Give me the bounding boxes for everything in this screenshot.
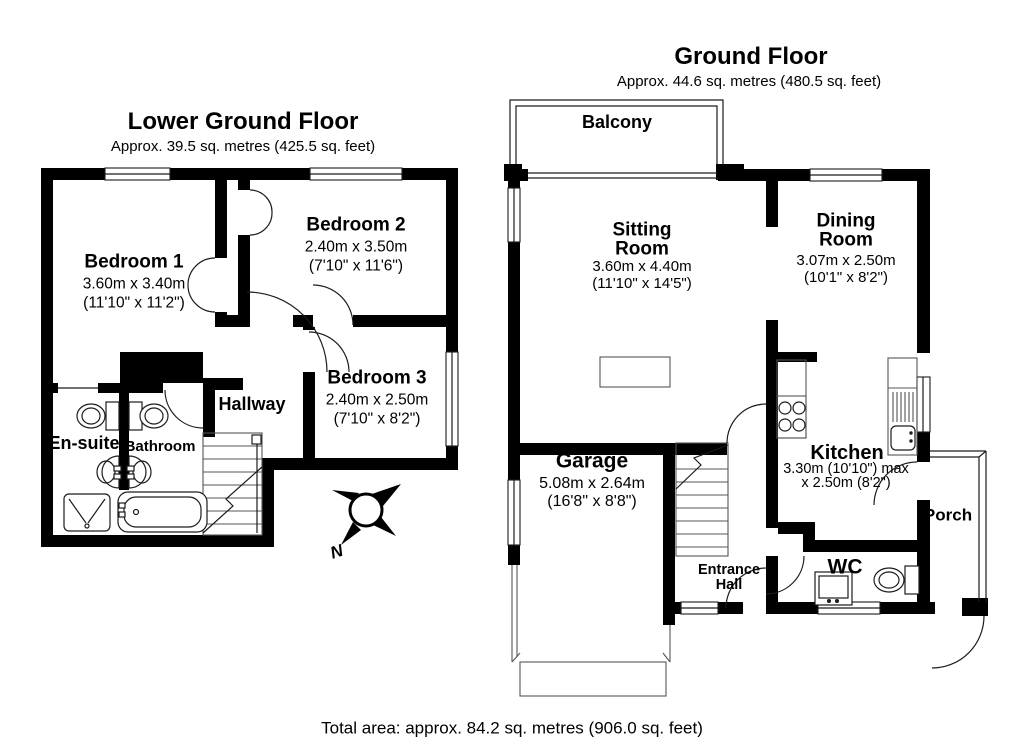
ground-floor-stairs (676, 443, 728, 556)
bathtub-icon (118, 492, 207, 532)
ground-floor-title: Ground Floor (674, 44, 827, 70)
bathroom-sink-icon (127, 456, 151, 488)
room-label-garage-metric: 5.08m x 2.64m (539, 475, 645, 493)
room-label-bedroom3-metric: 2.40m x 2.50m (326, 391, 429, 408)
room-label-kitchen-imperial: x 2.50m (8'2") (801, 476, 890, 492)
room-label-sitting-name: Sitting Room (592, 221, 692, 260)
room-label-hallway: Hallway (218, 395, 285, 415)
total-area-footer: Total area: approx. 84.2 sq. metres (906… (321, 720, 703, 739)
ground-floor-walls (508, 169, 988, 625)
room-label-garage-name: Garage (556, 449, 628, 472)
ground-floor-area: Approx. 44.6 sq. metres (480.5 sq. feet) (617, 74, 881, 91)
room-label-dining-imperial: (10'1" x 8'2") (804, 270, 888, 287)
sofa-outline (600, 357, 670, 387)
shower-icon (64, 494, 110, 531)
room-label-ensuite: En-suite (48, 434, 119, 454)
room-label-bedroom3-name: Bedroom 3 (327, 369, 426, 390)
room-label-bedroom2-metric: 2.40m x 3.50m (305, 238, 408, 255)
kitchen-sink-icon (888, 358, 917, 455)
compass-rose-icon: N (328, 484, 401, 563)
room-label-bathroom: Bathroom (125, 439, 196, 456)
room-label-bedroom2-imperial: (7'10" x 11'6") (309, 257, 403, 274)
room-label-bedroom1-name: Bedroom 1 (84, 253, 183, 274)
ensuite-sink-icon (97, 456, 121, 488)
room-label-bedroom1-metric: 3.60m x 3.40m (83, 275, 186, 292)
lower-ground-stairs (203, 433, 262, 535)
wc-toilet-icon (874, 566, 919, 594)
room-label-sitting-metric: 3.60m x 4.40m (592, 259, 691, 276)
kitchen-hob-icon (777, 360, 806, 438)
room-label-porch: Porch (924, 507, 972, 526)
ensuite-toilet-icon (77, 402, 119, 430)
compass-north-label: N (328, 541, 346, 563)
lower-ground-title: Lower Ground Floor (128, 109, 359, 135)
lower-ground-area: Approx. 39.5 sq. metres (425.5 sq. feet) (111, 139, 375, 156)
room-label-bedroom3-imperial: (7'10" x 8'2") (334, 410, 421, 427)
garage-door (512, 565, 670, 696)
room-label-balcony: Balcony (582, 113, 652, 133)
room-label-dining-metric: 3.07m x 2.50m (796, 253, 895, 270)
room-label-wc: WC (828, 555, 863, 578)
room-label-sitting-imperial: (11'10" x 14'5") (592, 276, 692, 293)
porch-structure (930, 451, 986, 602)
room-label-garage-imperial: (16'8" x 8'8") (547, 493, 637, 511)
room-label-bedroom2-name: Bedroom 2 (306, 216, 405, 237)
bathroom-toilet-icon (129, 402, 168, 430)
room-label-entrance-hall: Entrance Hall (689, 563, 769, 593)
room-label-bedroom1-imperial: (11'10" x 11'2") (83, 294, 185, 311)
room-label-dining-name: Dining Room (796, 212, 896, 251)
floorplan-page: N (0, 0, 1024, 744)
